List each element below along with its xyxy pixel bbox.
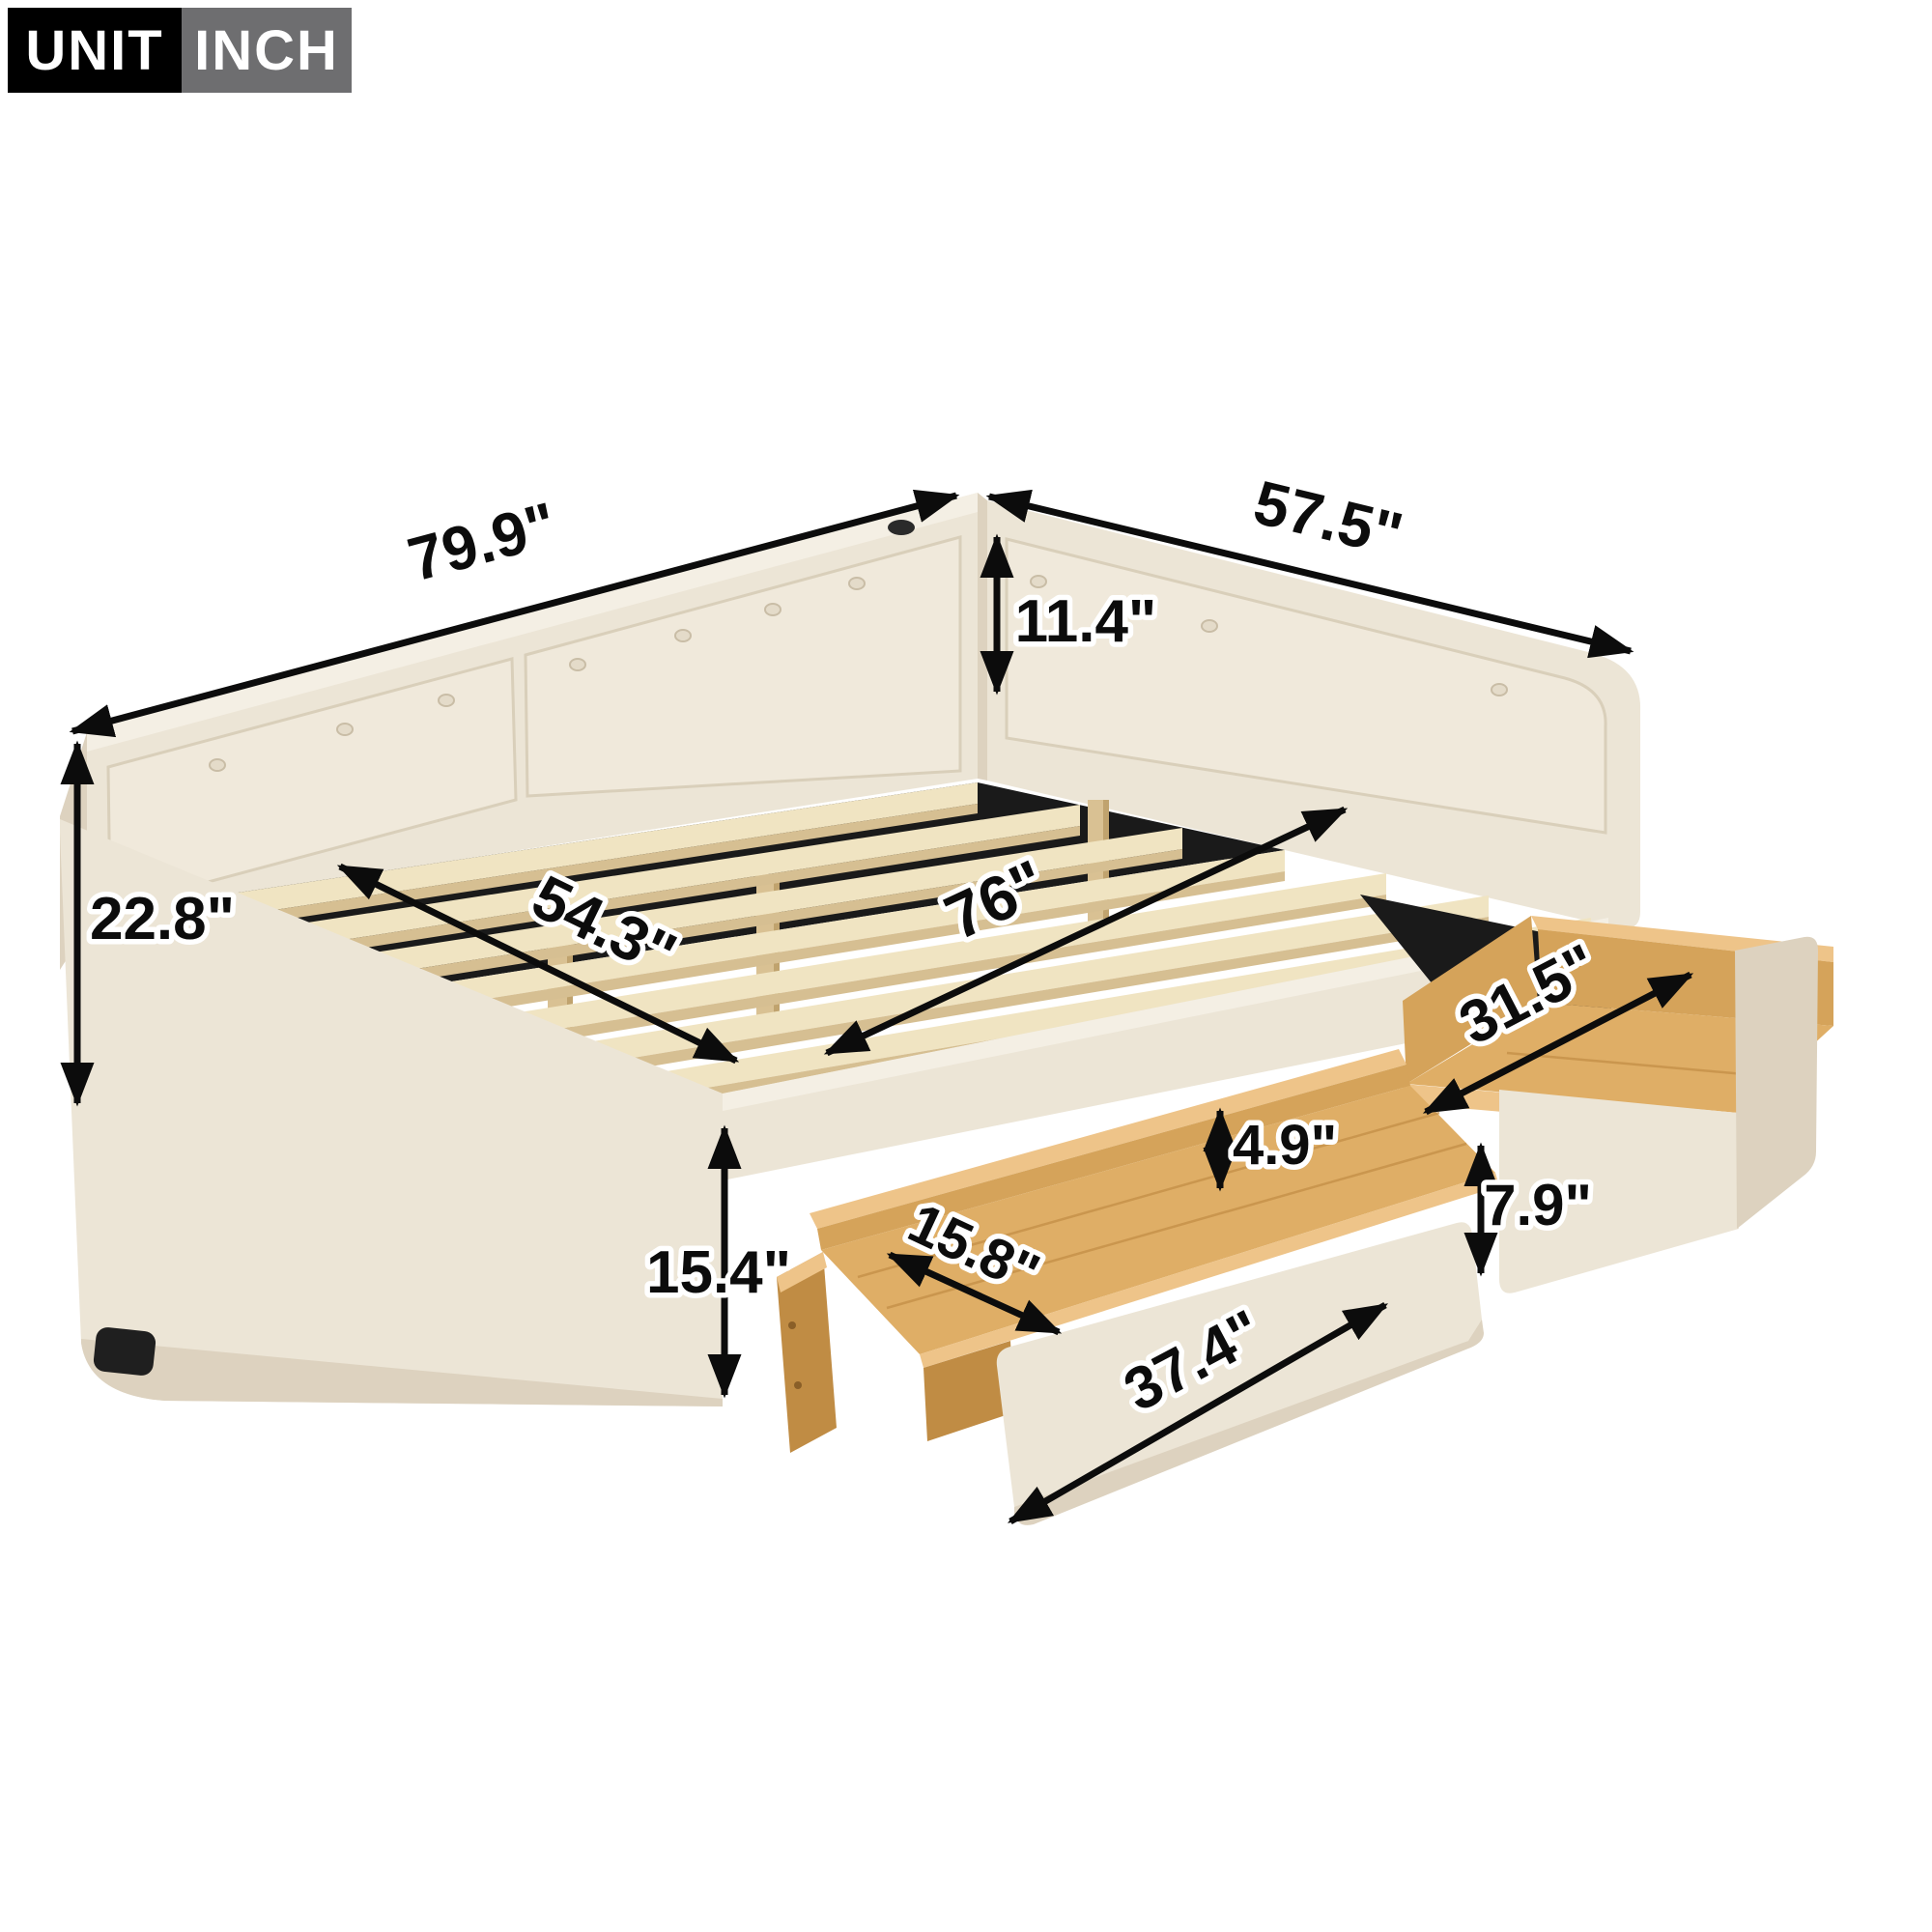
tuft-button xyxy=(1492,684,1507,696)
tuft-button xyxy=(337,724,353,735)
tuft-button xyxy=(849,578,865,589)
dim-label: 57.5" xyxy=(1247,468,1408,570)
screw-dot xyxy=(788,1321,796,1329)
tuft-button xyxy=(765,604,781,615)
dim-label: 15.4" xyxy=(646,1239,791,1306)
unit-badge-unit: UNIT xyxy=(8,8,182,93)
tuft-button xyxy=(1031,576,1046,587)
tuft-button xyxy=(210,759,225,771)
tuft-button xyxy=(675,630,691,641)
bed-foot xyxy=(93,1326,156,1377)
tuft-button xyxy=(570,659,585,670)
tuft-button xyxy=(439,695,454,706)
diagram-stage: 79.9" 57.5" 11.4" 22.8" 54.3" 76" 31.5" xyxy=(0,0,1932,1932)
corner-post-edge xyxy=(978,493,987,781)
drawer-deep-end-cap xyxy=(1735,937,1818,1229)
dim-label: 4.9" xyxy=(1233,1114,1337,1177)
dim-label: 7.9" xyxy=(1484,1173,1592,1237)
tuft-button xyxy=(1202,620,1217,632)
screw-dot xyxy=(794,1381,802,1389)
dim-label: 79.9" xyxy=(401,489,563,595)
unit-badge: UNIT INCH xyxy=(8,8,352,93)
daybed-dimension-diagram: 79.9" 57.5" 11.4" 22.8" 54.3" 76" 31.5" xyxy=(0,0,1932,1932)
unit-badge-inch: INCH xyxy=(182,8,352,93)
dim-label: 11.4" xyxy=(1015,588,1157,655)
corner-port-dot xyxy=(888,520,915,535)
dim-label: 22.8" xyxy=(90,886,235,952)
